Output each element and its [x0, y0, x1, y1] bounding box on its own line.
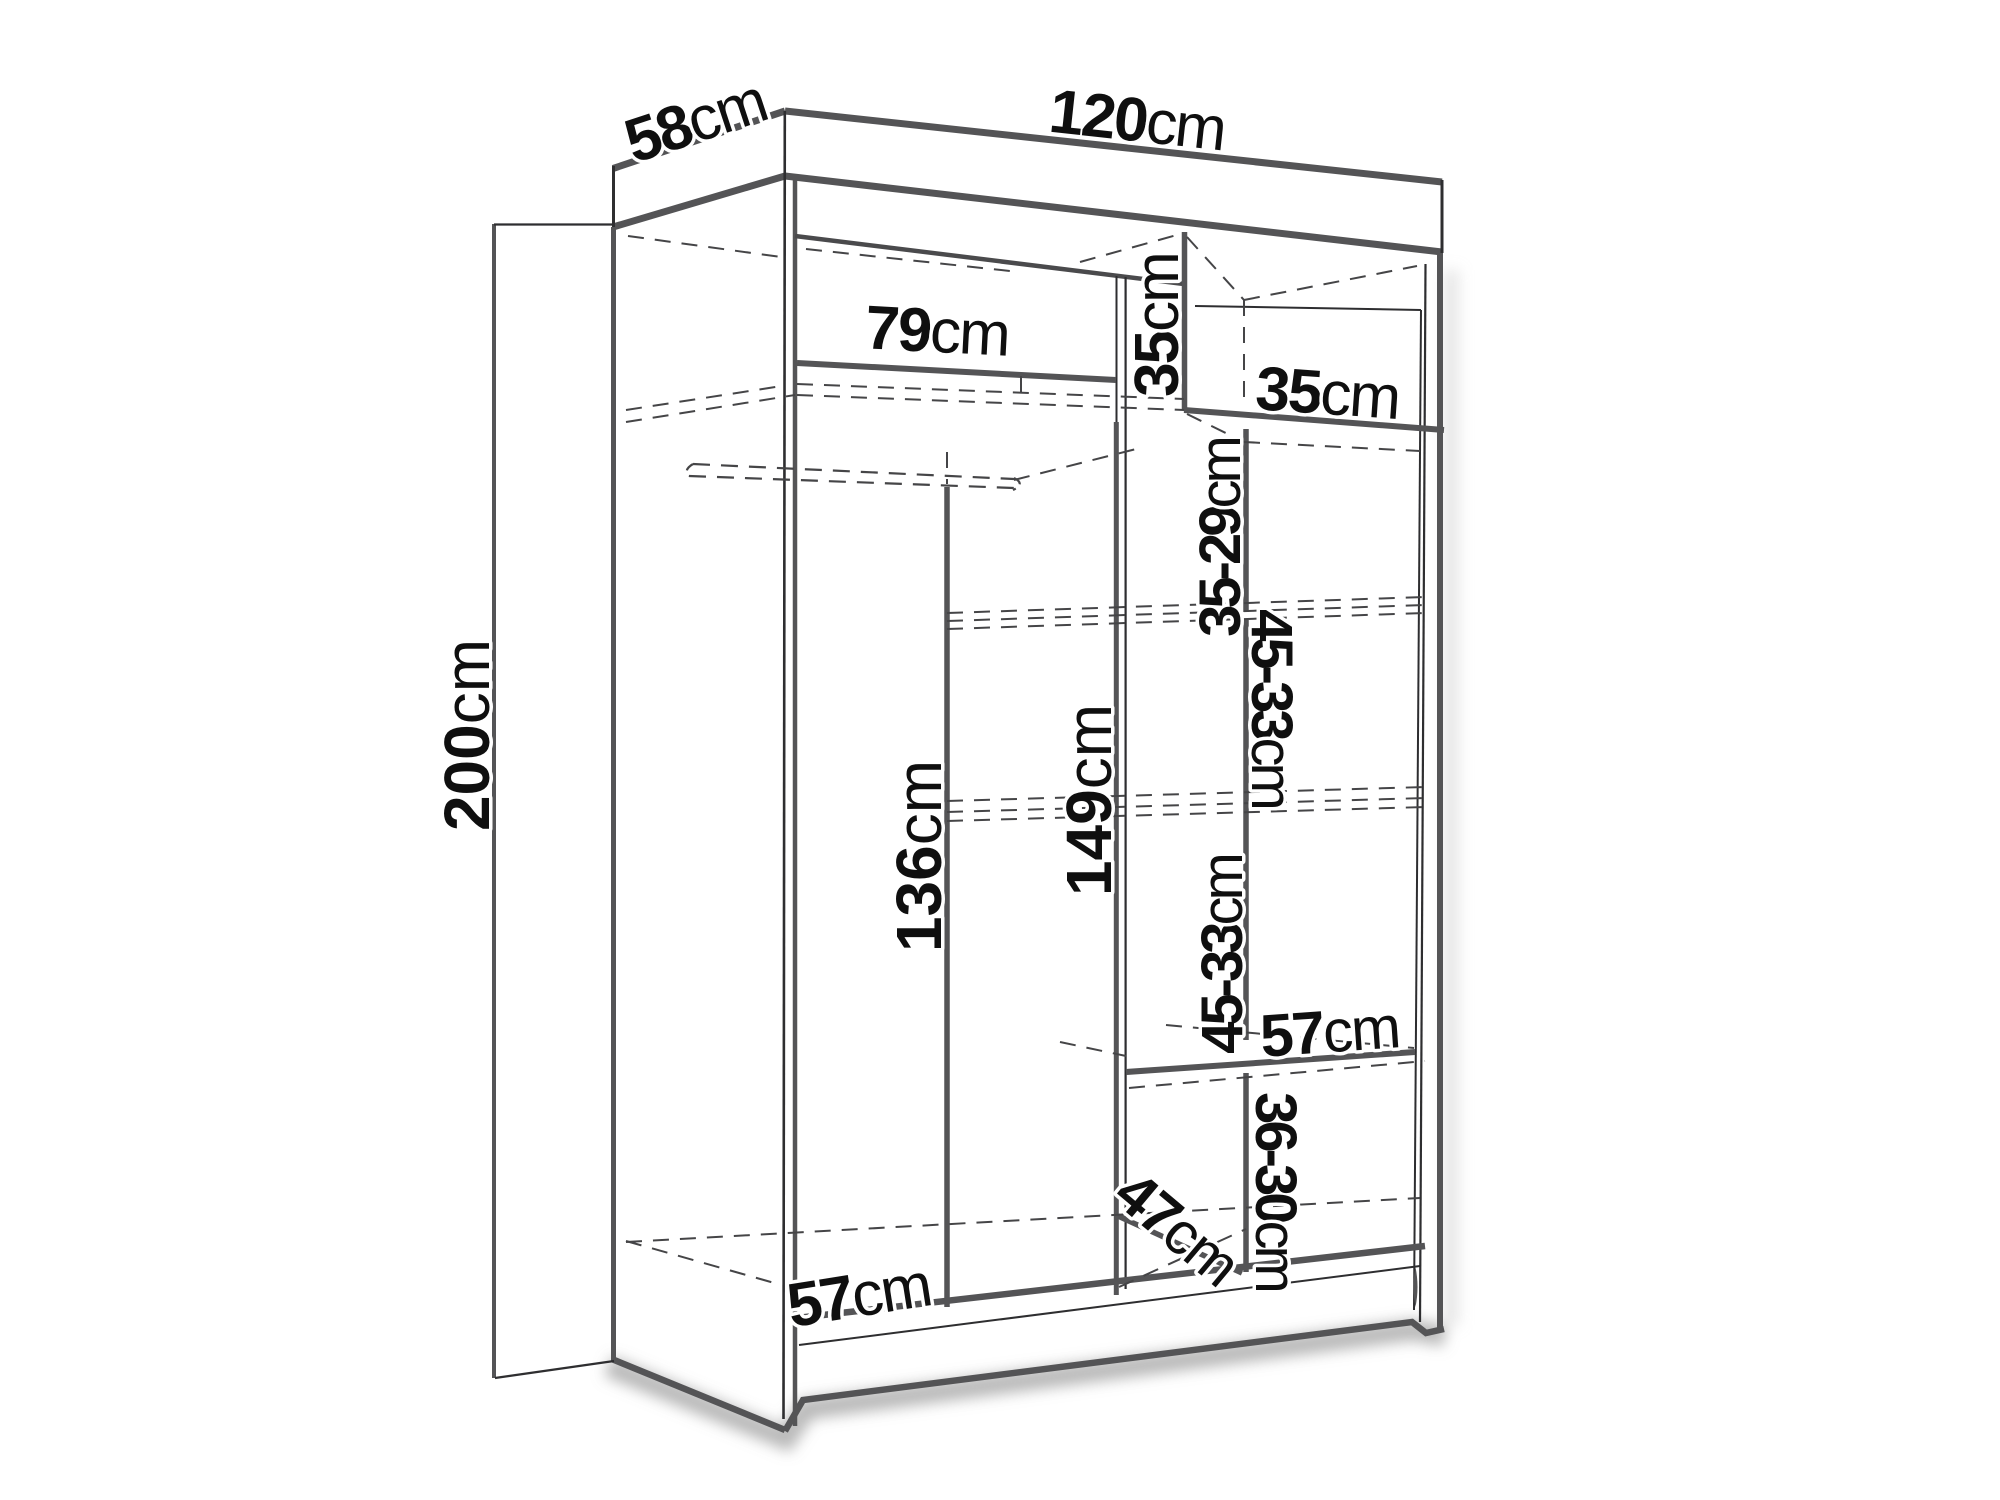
svg-text:149cm: 149cm [1053, 704, 1125, 896]
svg-text:57cm: 57cm [1258, 993, 1401, 1070]
svg-text:200cm: 200cm [431, 639, 503, 831]
svg-text:45-33cm: 45-33cm [1239, 609, 1304, 807]
svg-text:136cm: 136cm [883, 760, 955, 952]
svg-text:36-30cm: 36-30cm [1243, 1092, 1308, 1290]
svg-text:35cm: 35cm [1123, 253, 1192, 397]
svg-text:35-29cm: 35-29cm [1188, 438, 1253, 636]
svg-text:35cm: 35cm [1253, 354, 1401, 433]
svg-text:45-33cm: 45-33cm [1190, 855, 1255, 1053]
svg-text:79cm: 79cm [864, 293, 1011, 369]
